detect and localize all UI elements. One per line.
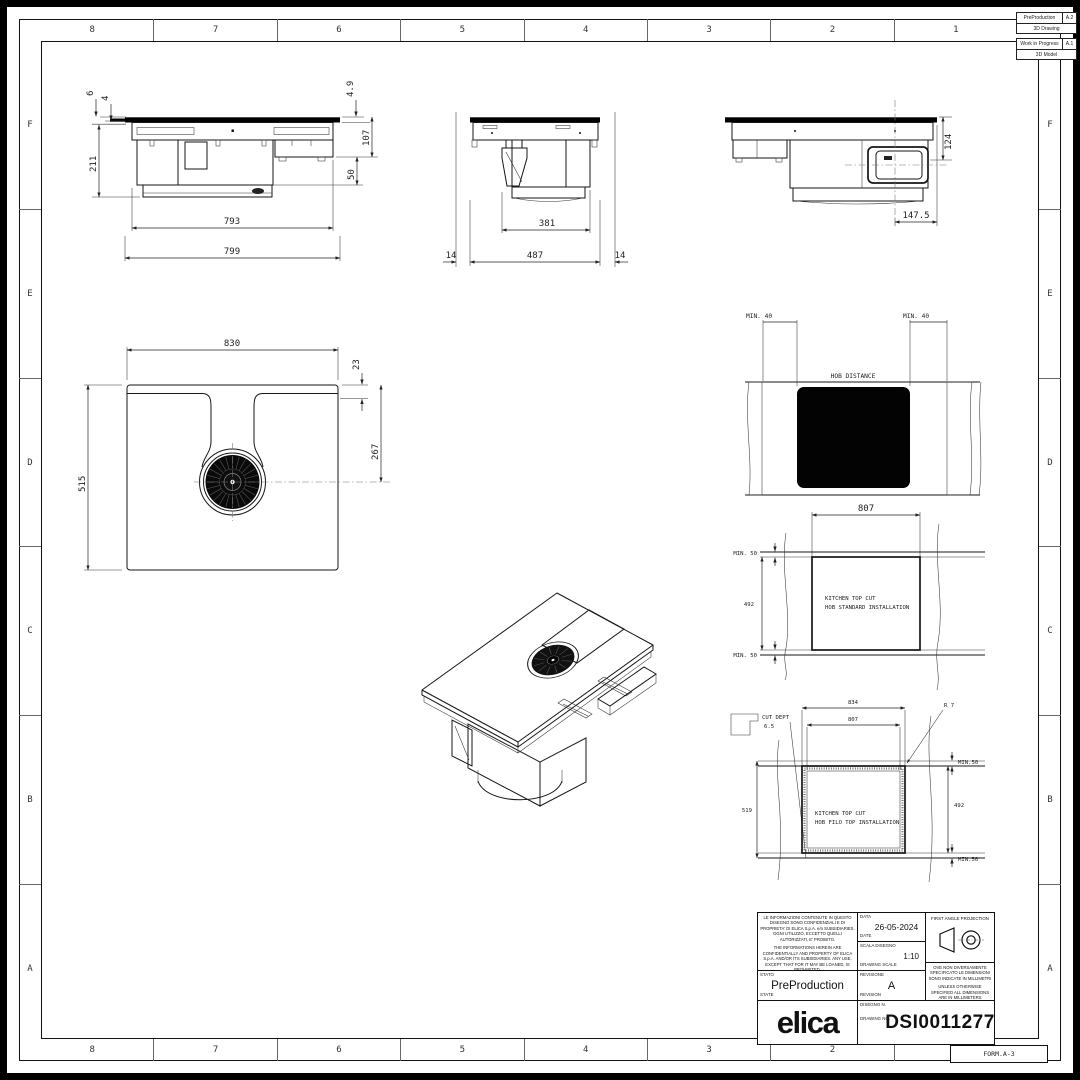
dim-label: 487: [527, 251, 543, 261]
dim-label: 50: [347, 169, 357, 180]
view-label: KITCHEN TOP CUT: [825, 596, 876, 602]
revision-value: A: [858, 971, 925, 1000]
dim-label: 807: [848, 717, 858, 723]
units-note-en: UNLESS OTHERWISE SPECIFIED ALL DIMENSION…: [928, 984, 992, 1000]
dim-label: 519: [742, 808, 752, 814]
scale-cell: SCALA DISEGNO DRAWING SCALE 1:10: [858, 942, 926, 971]
dim-label: MIN. 50: [733, 551, 757, 557]
date-value: 26-05-2024: [858, 913, 925, 941]
dim-label: 799: [224, 247, 240, 257]
dim-label: 515: [78, 476, 88, 492]
view-label: HOB STANDARD INSTALLATION: [825, 605, 909, 611]
dim-label: 4: [101, 96, 111, 101]
projection-cell: FIRST ANGLE PROJECTION: [926, 913, 994, 963]
state-cell: STATO STATE PreProduction: [758, 971, 858, 1001]
front-view: 6 4 211 793 799 4.9 107 50: [86, 81, 378, 261]
drawing-no-cell: DISEGNO N. DRAWING NO. DSI0011277: [858, 1001, 994, 1044]
state-value: PreProduction: [758, 971, 857, 1000]
view-label: KITCHEN TOP CUT: [815, 811, 866, 817]
brand-cell: elica: [758, 1001, 858, 1044]
projection-label: FIRST ANGLE PROJECTION: [926, 916, 994, 921]
side-view-2: 124 147.5: [725, 100, 954, 226]
dim-label: 381: [539, 219, 555, 229]
dim-label: 267: [371, 444, 381, 460]
drawing-no-value: DSI0011277: [858, 1001, 994, 1044]
title-block: LE INFORMAZIONI CONTENUTE IN QUESTO DISE…: [757, 912, 995, 1045]
elica-logo: elica: [758, 1001, 857, 1044]
dim-label: 211: [89, 156, 99, 172]
units-note-it: OVE NON DIVERSAMENTE SPECIFICATO LE DIME…: [928, 965, 992, 981]
units-note: OVE NON DIVERSAMENTE SPECIFICATO LE DIME…: [926, 963, 994, 1001]
dim-label: 492: [954, 803, 964, 809]
isometric-view: [422, 593, 656, 806]
dim-label: 807: [858, 504, 874, 514]
status-type: 3D Drawing: [1017, 24, 1076, 33]
dim-label: MIN. 40: [903, 313, 929, 320]
confidentiality-note-it: LE INFORMAZIONI CONTENUTE IN QUESTO DISE…: [760, 915, 855, 942]
standard-cut-view: 807 MIN. 50 MIN. 50 492 KITCHEN TOP CUT …: [733, 504, 985, 690]
dim-label: 147.5: [902, 211, 929, 221]
dim-label: MIN. 50: [733, 653, 757, 659]
view-label: HOB DISTANCE: [831, 373, 876, 380]
hob-distance-view: HOB DISTANCE MIN. 40 MIN. 40: [745, 313, 981, 495]
status-state: Work in Progress: [1017, 39, 1063, 49]
dim-label: R 7: [944, 703, 954, 709]
dim-label: MIN. 40: [746, 313, 772, 320]
dim-label: 23: [352, 359, 362, 370]
isometric-fan-icon: [523, 636, 583, 684]
dim-label: 6: [86, 91, 96, 96]
dim-label: 14: [615, 251, 626, 261]
status-state: PreProduction: [1017, 13, 1063, 23]
dim-label: 14: [446, 251, 457, 261]
form-label: FORM.A-3: [950, 1045, 1048, 1063]
dim-label: 4.9: [346, 81, 356, 97]
revision-cell: REVISIONE REVISION A: [858, 971, 926, 1001]
dim-label: 6.5: [764, 724, 774, 730]
status-type: 3D Model: [1017, 50, 1076, 59]
scale-value: 1:10: [858, 942, 925, 970]
first-angle-projection-icon: [930, 923, 990, 957]
dim-label: 793: [224, 217, 240, 227]
status-box-drawing: PreProduction A.2 3D Drawing: [1016, 12, 1077, 34]
status-rev: A.1: [1063, 39, 1076, 49]
dim-label: 124: [944, 134, 954, 150]
view-label: HOB FILO TOP INSTALLATION: [815, 820, 899, 826]
drawing-sheet-page: 8 7 6 5 4 3 2 1 8 7 6 5 4 3 2 1 F E D C …: [0, 0, 1080, 1080]
dim-label: CUT DEPT: [762, 715, 790, 721]
status-rev: A.2: [1063, 13, 1076, 23]
dim-label: MIN.50: [958, 760, 978, 766]
side-view: 381 487 14 14: [443, 112, 628, 267]
confidentiality-note-en: THE INFORMATIONS HEREIN ARE CONFIDENTIAL…: [760, 945, 855, 972]
dim-label: 107: [362, 130, 372, 146]
filo-cut-view: CUT DEPT 6.5 834 807 R 7 MIN.50 MIN.50: [731, 700, 985, 882]
dim-label: 492: [744, 602, 754, 608]
status-box-model: Work in Progress A.1 3D Model: [1016, 38, 1077, 60]
dim-label: 834: [848, 700, 859, 706]
plan-view: 830 23 267 515: [78, 339, 390, 570]
dim-label: 830: [224, 339, 240, 349]
confidentiality-note: LE INFORMAZIONI CONTENUTE IN QUESTO DISE…: [758, 913, 858, 971]
dim-label: MIN.50: [958, 857, 978, 863]
date-cell: DATA DATE 26-05-2024: [858, 913, 926, 942]
